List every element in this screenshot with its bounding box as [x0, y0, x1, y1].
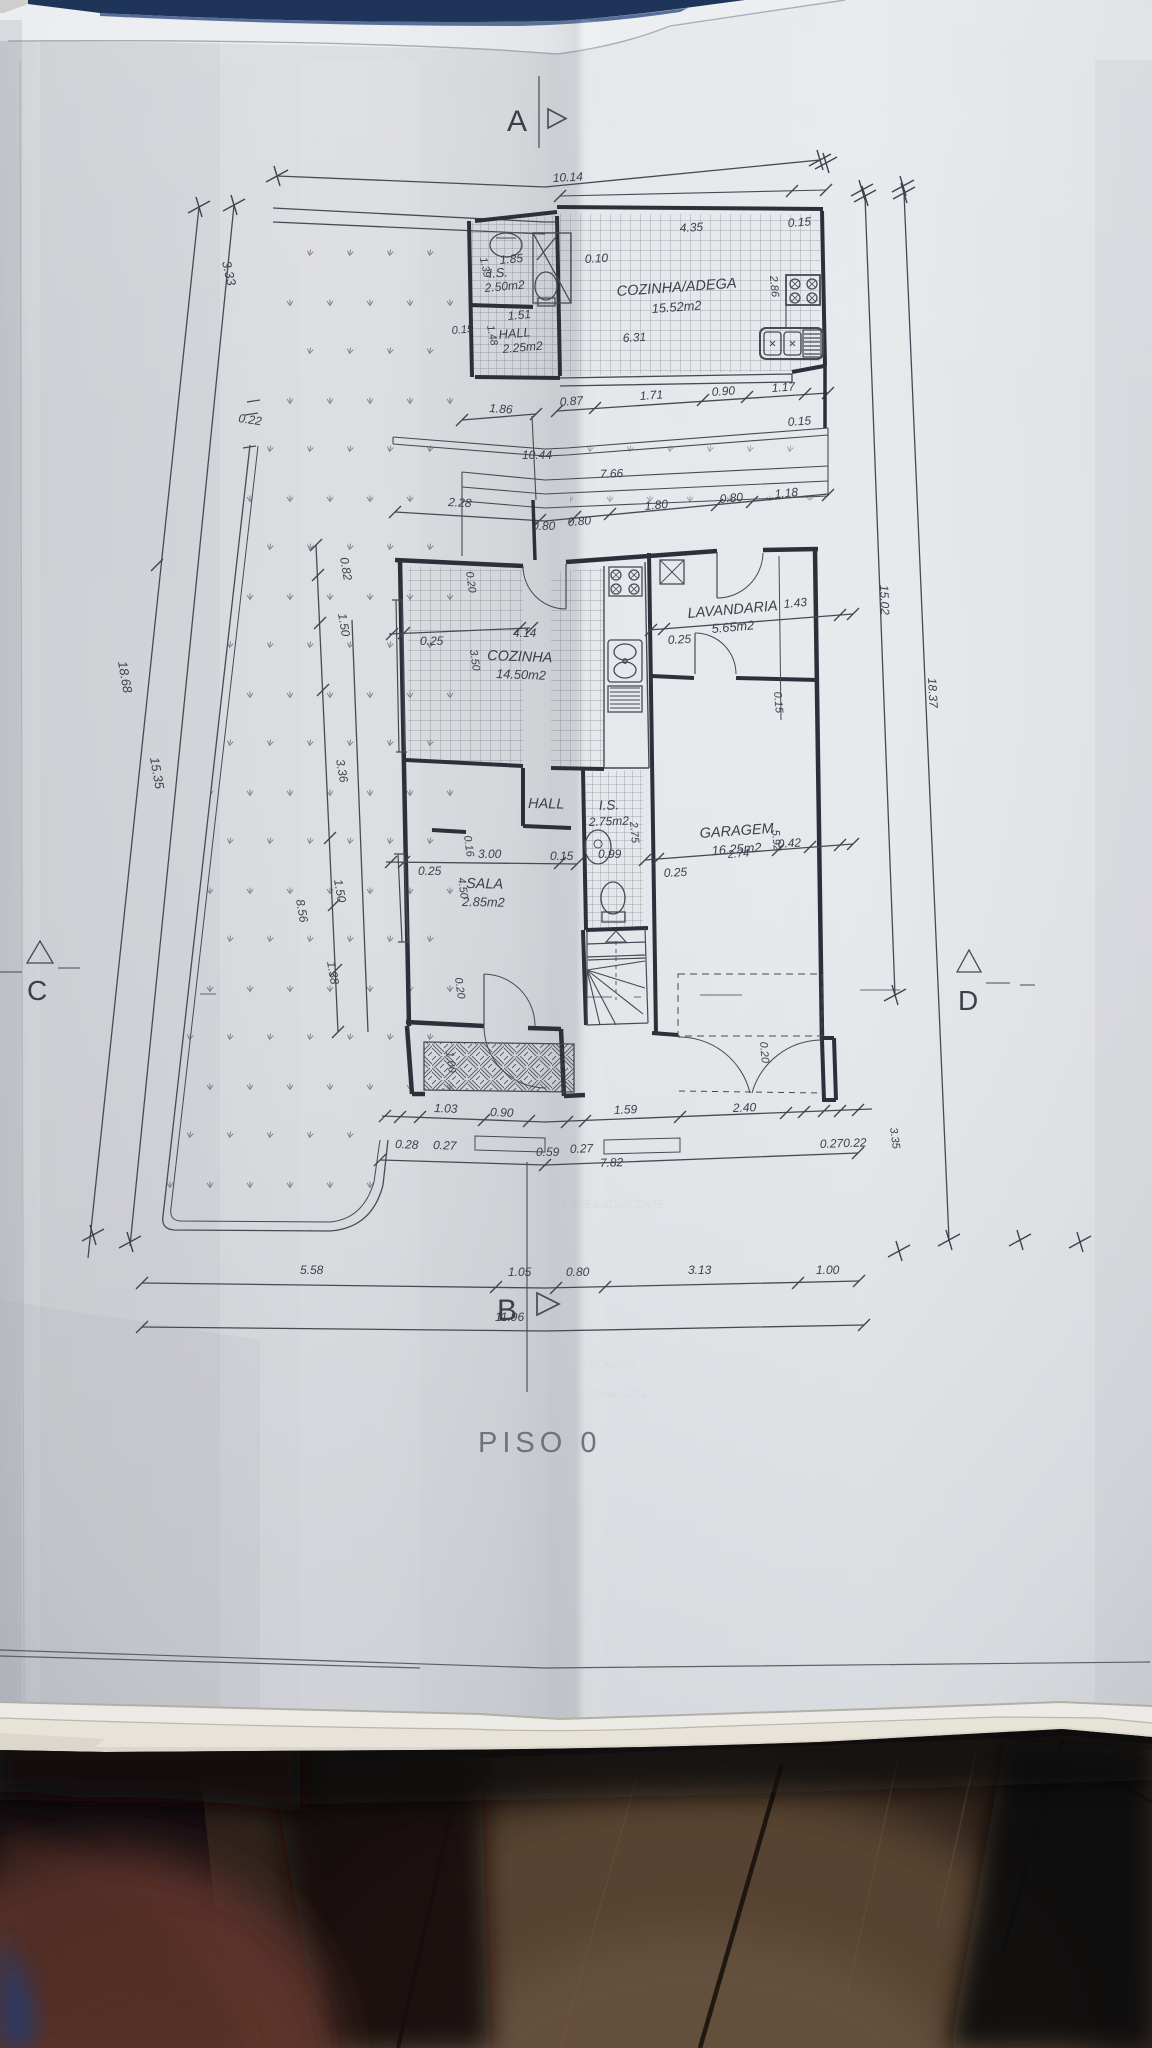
svg-text:0.15: 0.15: [550, 849, 574, 863]
svg-text:5.58: 5.58: [300, 1263, 324, 1277]
svg-text:0.80: 0.80: [566, 1265, 590, 1279]
svg-text:0.42: 0.42: [777, 835, 802, 851]
svg-text:I.S.: I.S.: [599, 797, 620, 813]
svg-text:10.44: 10.44: [522, 448, 552, 462]
svg-text:18.37: 18.37: [925, 677, 941, 709]
svg-text:1.51: 1.51: [507, 307, 531, 323]
svg-text:0.15: 0.15: [451, 323, 474, 337]
svg-text:ZONA AREA: ZONA AREA: [587, 1389, 648, 1401]
svg-text:C: C: [27, 975, 47, 1006]
svg-text:HALL: HALL: [528, 796, 565, 813]
svg-text:7.66: 7.66: [600, 466, 624, 481]
svg-text:0.59: 0.59: [536, 1145, 560, 1159]
svg-text:0.270.22: 0.270.22: [820, 1135, 867, 1151]
svg-text:0.87: 0.87: [559, 393, 585, 409]
svg-text:2.75m2: 2.75m2: [588, 814, 630, 829]
svg-text:1.05: 1.05: [508, 1265, 532, 1279]
svg-text:D: D: [958, 985, 978, 1016]
svg-text:0.15: 0.15: [771, 691, 785, 714]
svg-text:6.31: 6.31: [622, 330, 646, 345]
svg-text:2.40: 2.40: [732, 1100, 757, 1115]
svg-text:0.15: 0.15: [787, 413, 812, 429]
svg-text:0.99: 0.99: [598, 847, 622, 861]
svg-text:14.50m2: 14.50m2: [496, 666, 546, 683]
svg-text:0.25: 0.25: [418, 864, 442, 878]
svg-text:0.27: 0.27: [433, 1138, 458, 1153]
svg-text:4.35: 4.35: [679, 220, 703, 235]
svg-text:0.15: 0.15: [787, 214, 812, 230]
svg-text:10.14: 10.14: [552, 169, 583, 185]
svg-text:4.14: 4.14: [513, 626, 537, 640]
svg-text:0.25: 0.25: [663, 865, 687, 880]
svg-text:0.27: 0.27: [570, 1141, 595, 1156]
svg-text:11.96: 11.96: [495, 1310, 524, 1324]
svg-text:1.86: 1.86: [489, 401, 514, 417]
svg-text:3.00: 3.00: [478, 847, 502, 861]
svg-text:0.25: 0.25: [420, 634, 444, 648]
svg-text:3.13: 3.13: [688, 1263, 712, 1277]
svg-text:7.82: 7.82: [600, 1155, 624, 1170]
svg-text:2.74: 2.74: [726, 848, 749, 862]
svg-text:0.90: 0.90: [711, 383, 736, 399]
svg-text:0.28: 0.28: [395, 1137, 419, 1152]
svg-text:SALA: SALA: [466, 876, 503, 893]
svg-text:COZINHA: COZINHA: [487, 648, 553, 666]
svg-text:2.86: 2.86: [767, 274, 781, 298]
svg-text:1.59: 1.59: [614, 1102, 638, 1117]
svg-text:2.28: 2.28: [447, 495, 472, 510]
svg-text:1.71: 1.71: [639, 387, 663, 403]
svg-text:1.43: 1.43: [783, 595, 808, 611]
svg-text:1.03: 1.03: [434, 1101, 458, 1116]
svg-text:0.10: 0.10: [584, 251, 608, 266]
svg-text:PISO 0: PISO 0: [478, 1427, 602, 1459]
svg-text:0.90: 0.90: [490, 1105, 514, 1120]
svg-text:0.80: 0.80: [719, 490, 744, 506]
svg-text:0.25: 0.25: [667, 632, 691, 647]
svg-text:15.02: 15.02: [877, 585, 892, 616]
svg-text:A AREA ADIACENTE: A AREA ADIACENTE: [559, 1199, 665, 1211]
svg-text:0.20: 0.20: [757, 1041, 771, 1064]
svg-text:1.80: 1.80: [644, 497, 669, 513]
svg-text:NOMBRE: NOMBRE: [590, 1359, 637, 1371]
svg-text:A: A: [507, 105, 527, 138]
svg-text:1.00: 1.00: [816, 1263, 840, 1277]
svg-text:1.18: 1.18: [774, 485, 799, 501]
svg-text:2.75: 2.75: [627, 820, 641, 844]
svg-text:1.17: 1.17: [771, 379, 797, 395]
svg-text:0.80: 0.80: [567, 513, 592, 529]
